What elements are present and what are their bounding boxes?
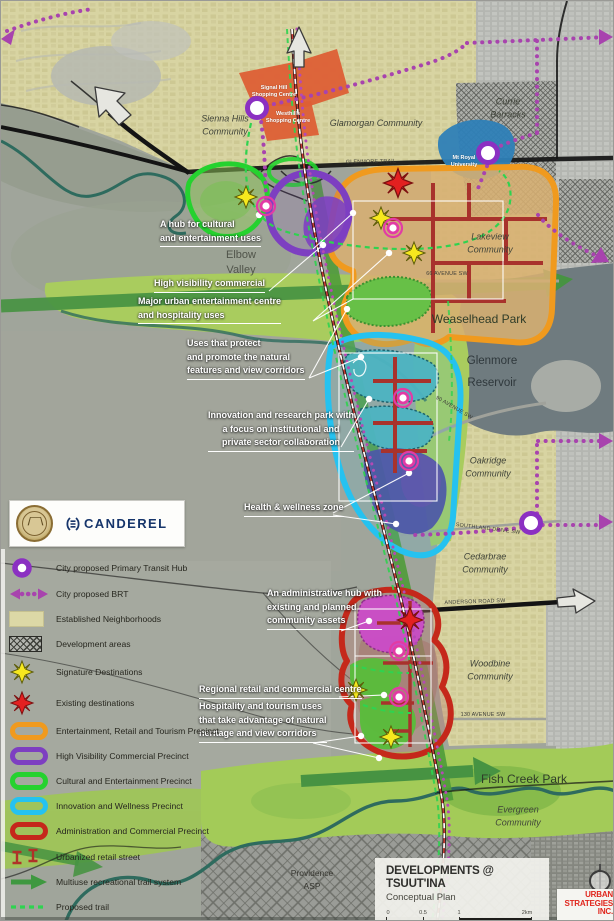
precinct-cyan-icon bbox=[9, 796, 56, 816]
legend-label: Multiuse recreational trail system bbox=[56, 877, 181, 887]
canderel-logo: CANDEREL bbox=[65, 516, 167, 532]
precinct-purple-icon bbox=[9, 746, 56, 766]
high-visibility-commercial-precinct bbox=[269, 173, 350, 254]
legend-label: Cultural and Entertainment Precinct bbox=[56, 776, 192, 786]
legend-label: Existing destinations bbox=[56, 698, 134, 708]
entertainment-retail-tourism-precinct bbox=[329, 167, 556, 344]
urban-strategies-logo: URBAN STRATEGIES INC. bbox=[557, 889, 614, 921]
legend-label: City proposed Primary Transit Hub bbox=[56, 563, 187, 573]
canderel-icon bbox=[65, 516, 81, 532]
legend-items: City proposed Primary Transit HubCity pr… bbox=[9, 557, 244, 917]
legend-item-precinct-green: Cultural and Entertainment Precinct bbox=[9, 771, 244, 792]
legend-label: Innovation and Wellness Precinct bbox=[56, 801, 183, 811]
brt-icon bbox=[9, 586, 56, 602]
scale-label: 2km bbox=[522, 910, 533, 916]
legend-label: Entertainment, Retail and Tourism Precin… bbox=[56, 726, 219, 736]
canderel-wordmark: CANDEREL bbox=[84, 516, 167, 531]
legend-item-transit-hub: City proposed Primary Transit Hub bbox=[9, 557, 244, 579]
legend-label: Administration and Commercial Precinct bbox=[56, 826, 209, 836]
transit-hub-icon bbox=[9, 557, 56, 579]
legend-item-retail-street: Urbanized retail street bbox=[9, 846, 244, 867]
partner-logo-box: CANDEREL bbox=[9, 500, 185, 547]
scale-label: 0 bbox=[386, 910, 389, 916]
proposed-trail-icon bbox=[9, 902, 56, 912]
legend-item-brt: City proposed BRT bbox=[9, 584, 244, 605]
title-block: DEVELOPMENTS @ TSUUT'INA Conceptual Plan… bbox=[375, 858, 549, 921]
legend-label: Signature Destinations bbox=[56, 667, 142, 677]
retail-street-icon bbox=[9, 848, 56, 866]
urban-strategies-line: INC. bbox=[557, 908, 613, 917]
legend-item-precinct-orange: Entertainment, Retail and Tourism Precin… bbox=[9, 720, 244, 741]
legend-label: Established Neighborhoods bbox=[56, 614, 161, 624]
signature-icon bbox=[9, 659, 56, 685]
scale-label: 0.5 bbox=[419, 910, 427, 916]
page-edge bbox=[1, 549, 5, 921]
existing-icon bbox=[9, 690, 56, 716]
development-icon bbox=[9, 636, 56, 652]
plan-title: DEVELOPMENTS @ TSUUT'INA bbox=[386, 864, 549, 890]
established-icon bbox=[9, 611, 56, 627]
legend-item-development: Development areas bbox=[9, 634, 244, 655]
plan-subtitle: Conceptual Plan bbox=[386, 892, 549, 903]
legend-item-signature: Signature Destinations bbox=[9, 659, 244, 685]
tsuutina-nation-seal-logo bbox=[16, 505, 53, 542]
legend-item-precinct-cyan: Innovation and Wellness Precinct bbox=[9, 796, 244, 817]
legend-item-proposed-trail: Proposed trail bbox=[9, 897, 244, 918]
legend-panel: City proposed Primary Transit HubCity pr… bbox=[9, 557, 244, 921]
precinct-red-icon bbox=[9, 821, 56, 841]
scale-bar: 0 0.5 1 2km bbox=[386, 911, 532, 921]
legend-label: Urbanized retail street bbox=[56, 852, 140, 862]
trail-arrow-icon bbox=[9, 873, 56, 891]
legend-label: City proposed BRT bbox=[56, 589, 128, 599]
legend-label: High Visibility Commercial Precinct bbox=[56, 751, 189, 761]
legend-label: Proposed trail bbox=[56, 902, 109, 912]
legend-item-trail-arrow: Multiuse recreational trail system bbox=[9, 871, 244, 892]
precinct-green-icon bbox=[9, 771, 56, 791]
legend-item-established: Established Neighborhoods bbox=[9, 609, 244, 630]
conceptual-plan-page: Sienna HillsCommunityGlamorgan Community… bbox=[0, 0, 614, 921]
precinct-orange-icon bbox=[9, 721, 56, 741]
legend-item-existing: Existing destinations bbox=[9, 690, 244, 716]
legend-item-precinct-purple: High Visibility Commercial Precinct bbox=[9, 746, 244, 767]
legend-label: Development areas bbox=[56, 639, 131, 649]
legend-item-precinct-red: Administration and Commercial Precinct bbox=[9, 821, 244, 842]
scale-label: 1 bbox=[457, 910, 460, 916]
